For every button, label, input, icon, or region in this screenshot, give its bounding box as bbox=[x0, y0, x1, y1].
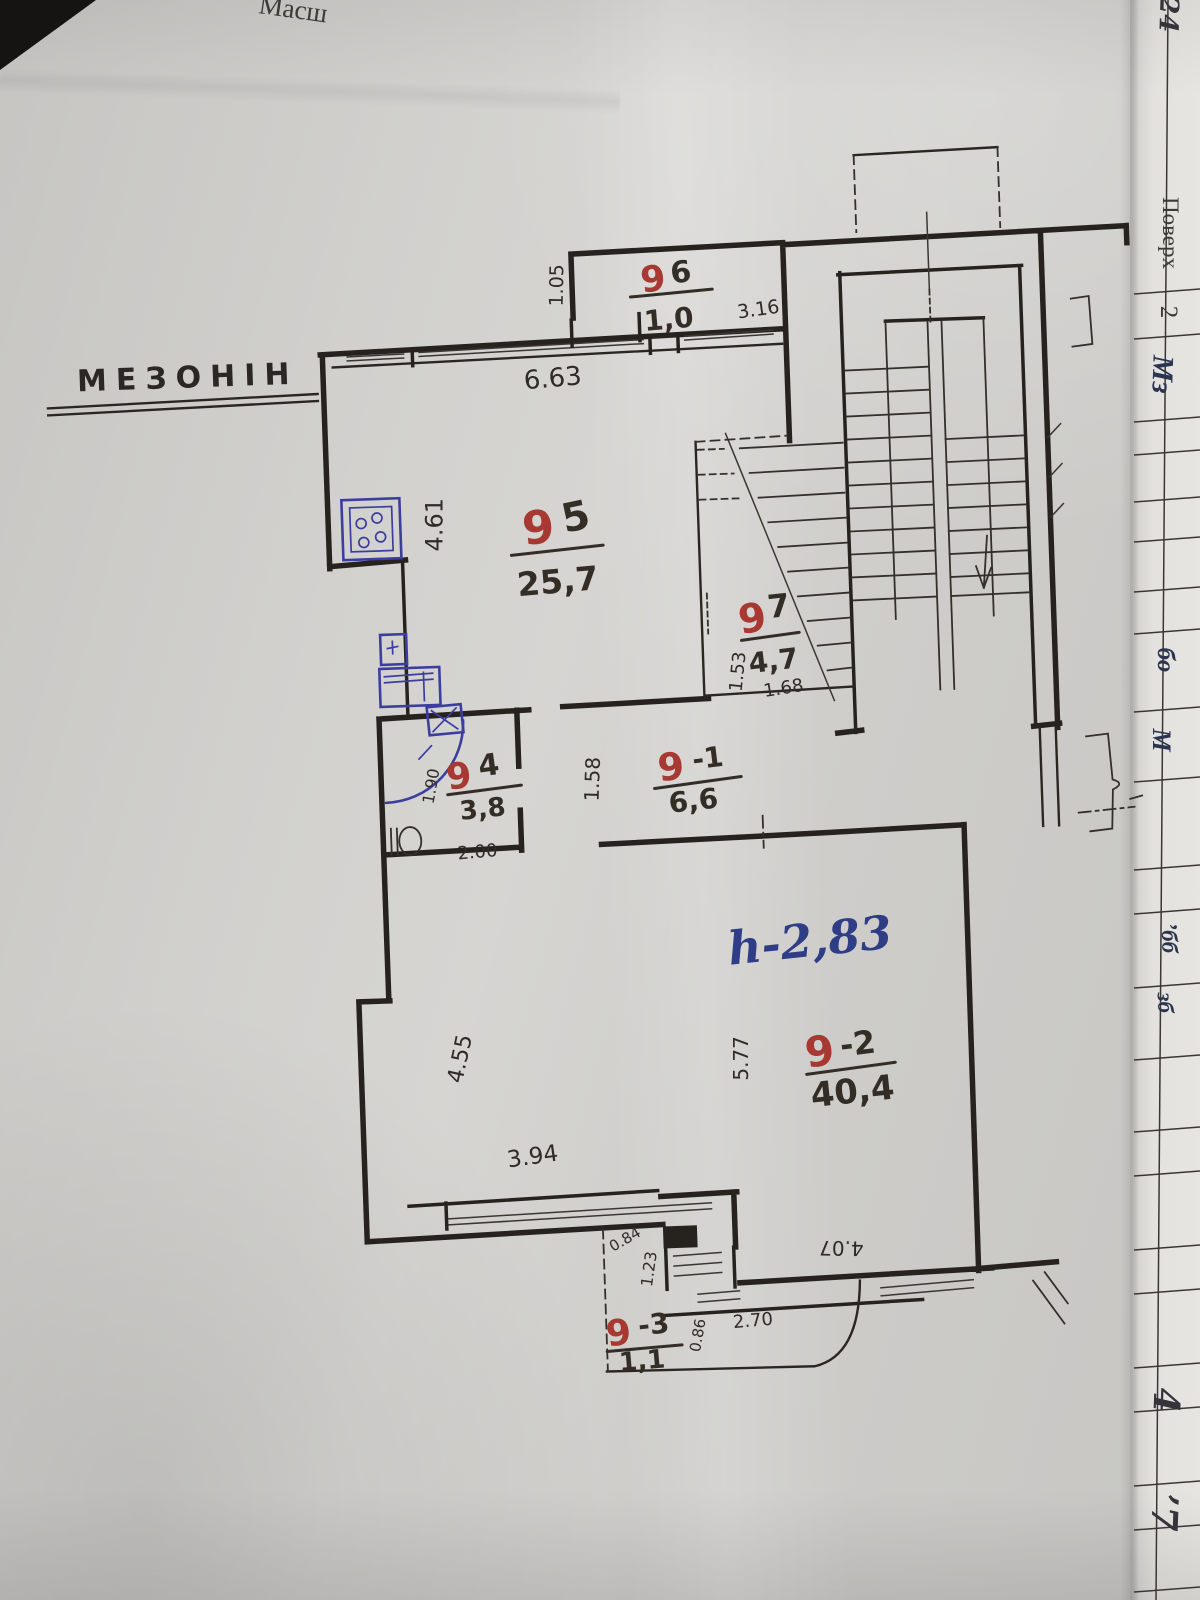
counter-symbol bbox=[379, 667, 440, 707]
dim-1-90: 1.90 bbox=[419, 767, 444, 805]
stair-axis-tick bbox=[927, 212, 930, 290]
room-number-suffix: -3 bbox=[636, 1306, 670, 1342]
stove-symbol bbox=[341, 498, 401, 560]
dim-5-77: 5.77 bbox=[729, 1036, 753, 1081]
wall-block bbox=[663, 1225, 698, 1248]
dim-1-58: 1.58 bbox=[579, 756, 605, 801]
height-note: h-2,83 bbox=[725, 905, 894, 976]
dim-2-00: 2.00 bbox=[457, 840, 499, 864]
room-number-suffix: -1 bbox=[690, 740, 725, 777]
stair-direction-arrow bbox=[975, 536, 992, 588]
dim-1-05: 1.05 bbox=[546, 264, 569, 307]
margin-entry-0: Мз bbox=[1145, 354, 1179, 395]
margin-column-header: Поверх bbox=[1158, 197, 1183, 270]
stair-stringers bbox=[885, 318, 996, 691]
margin-entry-4: зб bbox=[1153, 991, 1179, 1015]
dim-6-63: 6.63 bbox=[523, 361, 583, 396]
photographed-floor-plan: Масш 24 Поверх 2 Мз бо М ’бб зб 4 ’7 МЕЗ… bbox=[0, 0, 1200, 1600]
room-area: 25,7 bbox=[515, 558, 600, 604]
plan-drawing: Масш 24 Поверх 2 Мз бо М ’бб зб 4 ’7 МЕЗ… bbox=[0, 0, 1200, 1600]
dim-0-86: 0.86 bbox=[686, 1317, 710, 1353]
room-number-suffix: 4 bbox=[476, 747, 502, 785]
margin-entry-1: бо bbox=[1152, 648, 1179, 673]
room-area: 1,0 bbox=[643, 301, 695, 338]
margin-corner-fragment: 24 bbox=[1152, 0, 1183, 33]
room-label-9-2: 9 -2 40,4 bbox=[802, 1022, 897, 1116]
wall-break-mark bbox=[1033, 1271, 1069, 1324]
dim-4-61: 4.61 bbox=[420, 498, 448, 551]
margin-entry-6: ’7 bbox=[1142, 1493, 1185, 1532]
dim-2-70: 2.70 bbox=[732, 1309, 774, 1333]
dim-1-53: 1.53 bbox=[726, 651, 751, 693]
dim-1-23: 1.23 bbox=[637, 1250, 661, 1288]
room-label-9-5: 9 5 25,7 bbox=[509, 491, 605, 604]
margin-floor-number: 2 bbox=[1155, 306, 1182, 319]
room-number-suffix: -2 bbox=[838, 1023, 878, 1065]
room-label-9-1: 9 -1 6,6 bbox=[653, 739, 743, 820]
room-area: 1,1 bbox=[618, 1344, 667, 1378]
plan-title: МЕЗОНІН bbox=[76, 357, 299, 400]
tread-stub-dashes bbox=[698, 448, 743, 499]
margin-entry-2: М bbox=[1147, 727, 1176, 752]
room-number-suffix: 5 bbox=[557, 492, 594, 543]
room-area: 4,7 bbox=[747, 641, 800, 680]
room-label-9-6: 9 6 1,0 bbox=[629, 253, 714, 338]
dim-1-68: 1.68 bbox=[762, 675, 805, 702]
dim-3-94: 3.94 bbox=[505, 1141, 559, 1174]
dashed-short bbox=[697, 290, 942, 634]
dim-3-16: 3.16 bbox=[736, 296, 781, 324]
room-area: 6,6 bbox=[667, 782, 720, 820]
margin-table: 24 Поверх 2 Мз бо М ’бб зб 4 ’7 bbox=[1134, 0, 1200, 1600]
room-number-red: 9 bbox=[520, 499, 557, 556]
room-label-9-4: 9 4 3,8 bbox=[444, 746, 523, 827]
edge-bracket-top bbox=[1071, 296, 1093, 347]
dashed-lines bbox=[566, 147, 1040, 1371]
room-area: 3,8 bbox=[458, 792, 507, 827]
room-area: 40,4 bbox=[809, 1068, 897, 1117]
margin-entry-5: 4 bbox=[1145, 1387, 1188, 1414]
room-number-suffix: 7 bbox=[765, 586, 791, 626]
dim-4-55: 4.55 bbox=[443, 1032, 478, 1085]
room-number-suffix: 6 bbox=[668, 254, 693, 291]
top-edge-cut-text: Масш bbox=[257, 0, 329, 29]
dim-4-07: 4.07 bbox=[819, 1236, 864, 1261]
sink-symbol bbox=[380, 634, 407, 665]
mezzanine-plan: МЕЗОНІН bbox=[40, 143, 1166, 1397]
window-glazing bbox=[346, 324, 974, 1313]
margin-entry-3: ’бб bbox=[1156, 922, 1182, 955]
